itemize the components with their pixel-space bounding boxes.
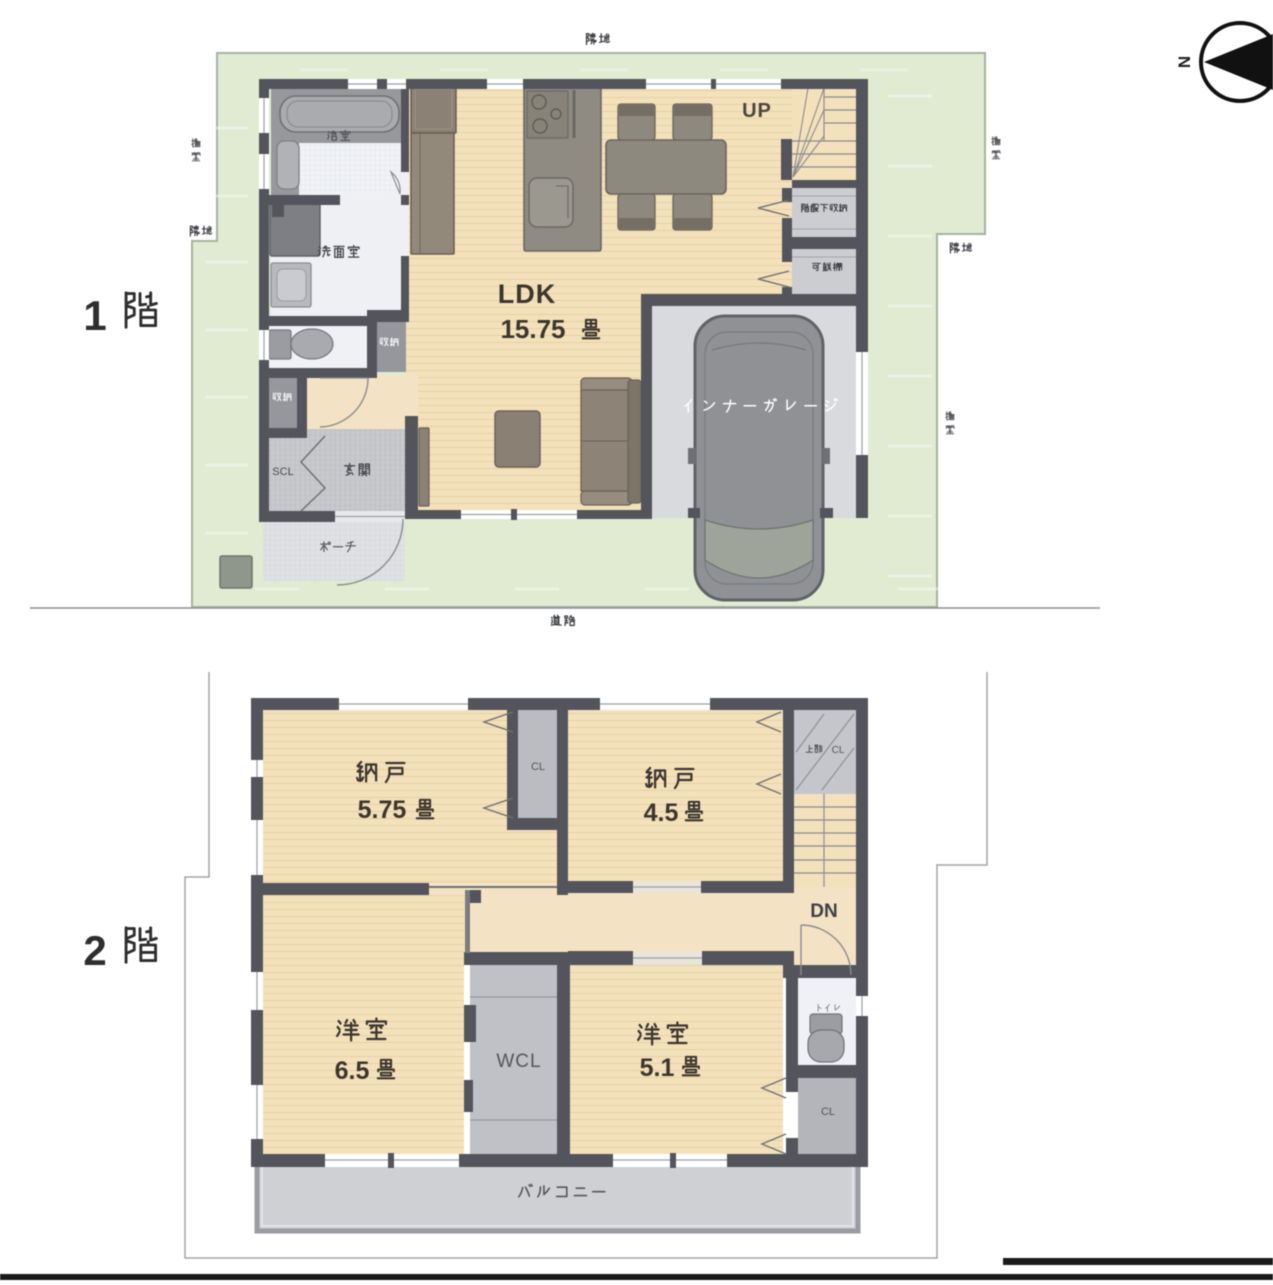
svg-text:UP: UP (742, 100, 772, 122)
svg-text:CL: CL (821, 1106, 835, 1118)
svg-text:SCL: SCL (272, 466, 293, 478)
svg-text:4.5: 4.5 (644, 799, 679, 827)
svg-text:5.75: 5.75 (358, 796, 407, 824)
svg-text:CL: CL (531, 761, 545, 773)
svg-text:15.75: 15.75 (500, 314, 565, 344)
svg-text:WCL: WCL (496, 1051, 541, 1072)
svg-text:LDK: LDK (498, 279, 557, 309)
svg-text:N: N (1175, 56, 1194, 68)
svg-text:2: 2 (83, 927, 106, 974)
svg-text:6.5: 6.5 (335, 1057, 370, 1085)
svg-text:5.1: 5.1 (640, 1054, 675, 1082)
svg-text:DN: DN (810, 901, 837, 922)
svg-text:1: 1 (83, 292, 106, 339)
svg-text:CL: CL (832, 745, 845, 756)
